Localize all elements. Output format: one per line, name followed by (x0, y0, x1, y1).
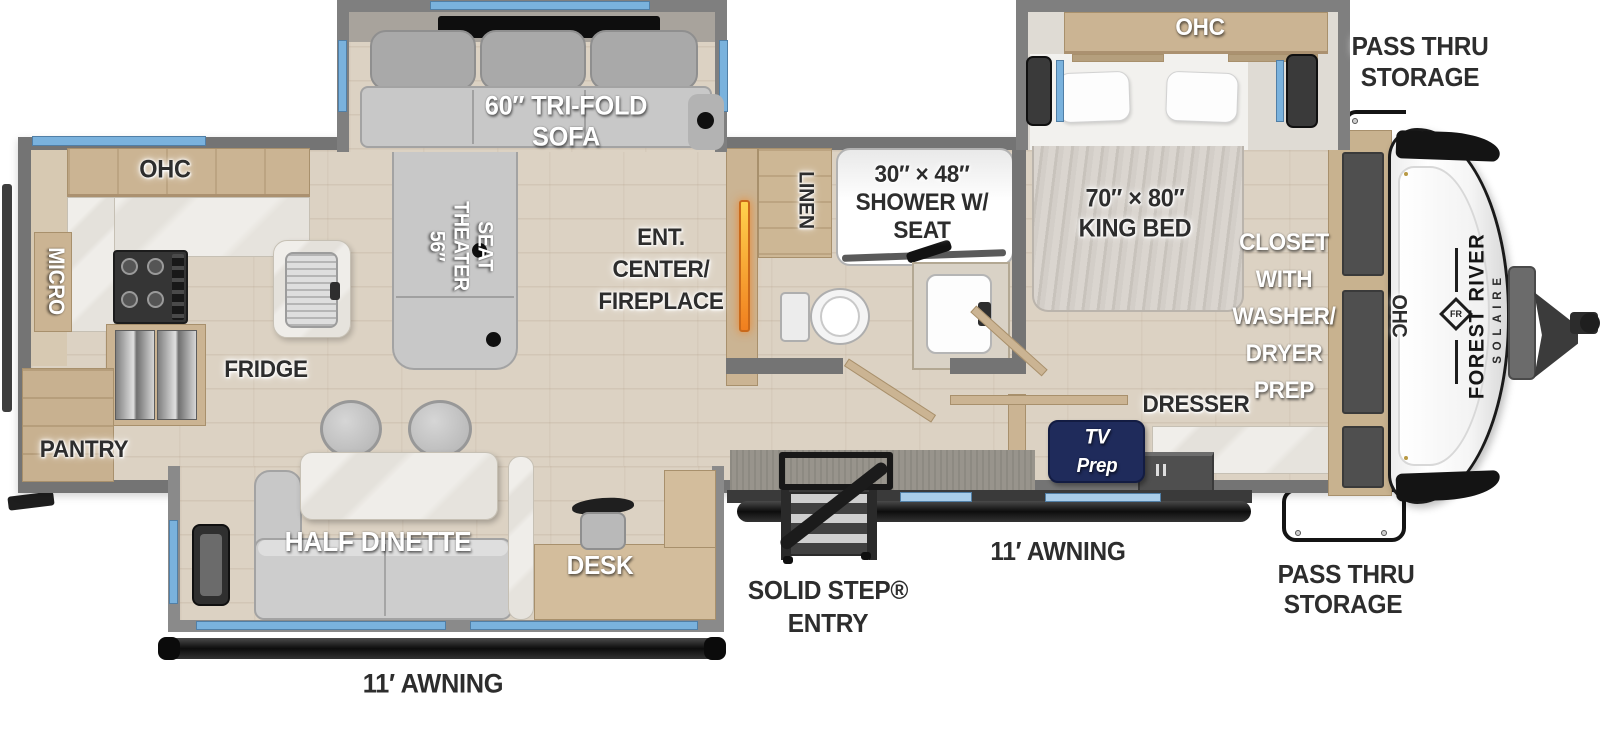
label-ent-3: FIREPLACE (598, 290, 723, 314)
kitchen-window (32, 136, 206, 146)
stove-burner-icon (121, 258, 138, 275)
label-awning-right: 11′ AWNING (990, 538, 1125, 564)
body-window-strip (900, 492, 972, 502)
theater-seat-seam (396, 296, 514, 298)
pantry-cabinet (22, 368, 114, 482)
screw-icon (1352, 118, 1358, 124)
label-king-2: KING BED (1079, 217, 1192, 242)
toilet-tank (780, 292, 810, 342)
screw-icon (1295, 530, 1301, 536)
rivet-icon (1404, 172, 1408, 176)
label-kitchen-ohc: OHC (139, 158, 190, 183)
label-awning-bottom: 11′ AWNING (363, 671, 504, 698)
brand-rule (1455, 248, 1458, 292)
label-pantry: PANTRY (40, 438, 129, 462)
sofa-slide-window-left (338, 40, 347, 112)
dinette-stool (408, 400, 472, 458)
label-closet-2: WITH (1256, 268, 1313, 292)
rivet-icon (1404, 456, 1408, 460)
bath-wall-bottom-left (726, 358, 843, 374)
label-pass-thru-bottom-2: STORAGE (1284, 591, 1402, 617)
front-cap-band-bottom (1396, 470, 1501, 502)
fridge (115, 330, 155, 420)
sofa-back-cushion (480, 30, 586, 90)
bed-slide-accent (1276, 60, 1284, 122)
rear-jack (7, 491, 54, 511)
label-tv-prep-1: TV (1085, 427, 1110, 448)
sofa-back-cushion (370, 30, 476, 90)
label-closet-4: DRYER (1246, 342, 1323, 366)
label-king-1: 70″ × 80″ (1085, 187, 1184, 212)
hitch-pad (1508, 266, 1536, 380)
label-half-dinette: HALF DINETTE (285, 528, 472, 556)
closet-recess (1342, 152, 1384, 276)
label-sofa-1: 60″ TRI-FOLD (485, 93, 647, 120)
sofa-back-cushion (590, 30, 698, 90)
step-foot (783, 556, 793, 564)
label-ent-2: CENTER/ (612, 258, 709, 282)
label-closet-5: PREP (1254, 379, 1314, 403)
label-theater-3: SEAT (475, 221, 496, 271)
label-fridge: FRIDGE (224, 358, 308, 382)
closet-recess (1342, 426, 1384, 488)
label-shower-1: 30″ × 48″ (875, 163, 970, 187)
label-desk: DESK (567, 552, 634, 578)
entry-step-rail (869, 490, 877, 560)
stove-burner-icon (147, 258, 164, 275)
label-micro: MICRO (45, 247, 67, 315)
awning-end-cap (704, 637, 726, 660)
fridge (157, 330, 197, 420)
fireplace (739, 200, 750, 332)
pillow (1057, 71, 1131, 123)
label-solid-step-1: SOLID STEP® (748, 577, 908, 603)
pillow (1165, 71, 1239, 123)
label-linen: LINEN (796, 171, 817, 229)
dinette-slide-window-bottom (470, 621, 698, 630)
closet-recess (1342, 290, 1384, 414)
dinette-slide-window-bottom (196, 621, 446, 630)
bedroom-window-left (1026, 56, 1052, 126)
stove-knob-panel (172, 254, 184, 320)
outlet-icon (1156, 464, 1159, 476)
label-pass-thru-top-1: PASS THRU (1352, 33, 1489, 59)
label-shower-3: SEAT (893, 219, 950, 243)
hitch-a-frame (1534, 292, 1578, 378)
forest-river-logo-text: FR (1450, 309, 1462, 319)
dinette-slide-accent (169, 520, 178, 604)
dinette-window-glass (200, 534, 222, 596)
body-window-strip (1045, 493, 1161, 502)
bed-rail (950, 395, 1128, 405)
sofa-slide-window-top (430, 1, 650, 10)
desk-chair-seat (580, 512, 626, 550)
desk-divider (508, 456, 534, 620)
label-closet-1: CLOSET (1239, 231, 1329, 255)
label-theater-1: 56″ (427, 231, 448, 262)
rear-bumper (2, 184, 12, 412)
bed-slide-accent (1056, 60, 1064, 122)
hitch-ball-icon (1580, 313, 1600, 333)
floor-plan: FR OHC MICRO FRIDGE PANTRY 60″ TRI-FOLD … (0, 0, 1600, 747)
faucet-icon (330, 282, 340, 300)
awning-end-cap (158, 637, 180, 660)
label-bed-ohc: OHC (1175, 16, 1224, 40)
toilet-seat (820, 296, 860, 337)
kitchen-counter-left (67, 197, 115, 332)
tv-platform (1138, 452, 1214, 492)
bedroom-window-right (1286, 54, 1318, 128)
label-sofa-2: SOFA (532, 124, 600, 151)
dinette-stool (320, 400, 382, 458)
cupholder-icon (486, 332, 501, 347)
label-tv-prep-2: Prep (1077, 456, 1118, 476)
label-pass-thru-top-2: STORAGE (1361, 64, 1479, 90)
label-closet-3: WASHER/ (1232, 305, 1335, 329)
sofa-seam (472, 90, 474, 144)
screw-icon (1381, 530, 1387, 536)
label-ent-1: ENT. (637, 226, 685, 250)
brand-manufacturer: FOREST RIVER (1467, 233, 1488, 399)
dinette-table (300, 452, 498, 520)
brand-model: SOLAIRE (1491, 272, 1503, 364)
awning-roller-bottom (166, 638, 718, 659)
label-front-ohc: OHC (1389, 294, 1410, 337)
label-dresser: DRESSER (1142, 393, 1249, 417)
outlet-icon (1163, 464, 1166, 476)
label-shower-2: SHOWER W/ (856, 191, 989, 215)
cupholder-icon (697, 112, 714, 129)
label-theater-2: THEATER (451, 201, 472, 291)
stove-burner-icon (121, 291, 138, 308)
label-solid-step-2: ENTRY (788, 610, 869, 636)
brand-rule (1455, 340, 1458, 384)
stove-burner-icon (147, 291, 164, 308)
front-cap-band-top (1396, 130, 1501, 162)
bed-ohc-shelf (1072, 54, 1164, 62)
desk-surface-right (664, 470, 716, 548)
label-pass-thru-bottom-1: PASS THRU (1278, 561, 1415, 587)
step-foot (861, 552, 871, 560)
